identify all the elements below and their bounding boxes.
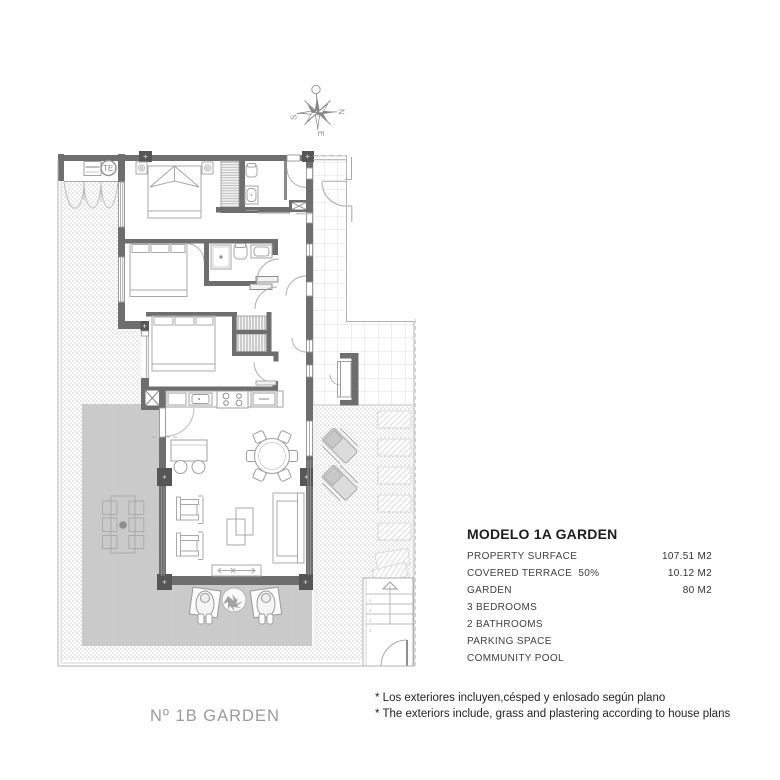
svg-text:TE: TE	[103, 164, 113, 173]
svg-text:E: E	[316, 131, 325, 136]
svg-text:N: N	[337, 109, 346, 115]
svg-text:S: S	[290, 115, 299, 120]
